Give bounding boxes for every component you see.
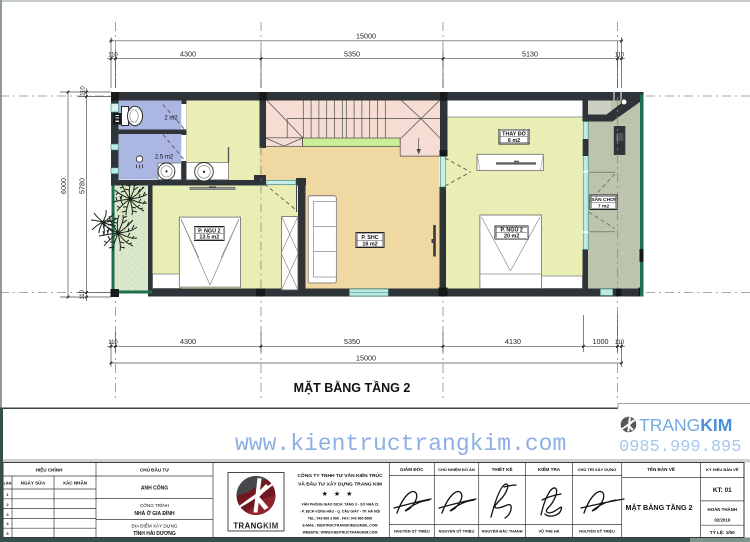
svg-text:★★★: ★★★ bbox=[322, 490, 359, 498]
svg-text:KT: 01: KT: 01 bbox=[713, 487, 732, 494]
svg-text:P. SHC: P. SHC bbox=[361, 235, 378, 241]
svg-text:XÁC NHẬN: XÁC NHẬN bbox=[63, 480, 88, 486]
svg-text:MẶT BẰNG TẦNG 2: MẶT BẰNG TẦNG 2 bbox=[294, 380, 411, 395]
svg-text:4300: 4300 bbox=[180, 337, 196, 346]
svg-text:ANH CÔNG: ANH CÔNG bbox=[141, 484, 168, 492]
svg-text:LẦN: LẦN bbox=[4, 482, 12, 486]
svg-text:6000: 6000 bbox=[59, 178, 68, 194]
svg-text:6 m2: 6 m2 bbox=[508, 138, 520, 144]
svg-text:5350: 5350 bbox=[344, 49, 360, 58]
svg-text:110: 110 bbox=[615, 52, 625, 58]
svg-text:TEL: 043 666 3 666 . FAX: 043: TEL: 043 666 3 666 . FAX: 043 666 8666 bbox=[308, 517, 372, 521]
svg-text:E-MAIL: KIENTRUCTRANGKIM@GMAIL: E-MAIL: KIENTRUCTRANGKIM@GMAIL.COM bbox=[303, 524, 378, 528]
svg-text:5130: 5130 bbox=[522, 49, 538, 58]
svg-text:7 m2: 7 m2 bbox=[598, 203, 609, 209]
svg-text:CÔNG TRÌNH: CÔNG TRÌNH bbox=[140, 502, 169, 508]
svg-text:KÝ HIỆU BẢN VẼ: KÝ HIỆU BẢN VẼ bbox=[706, 467, 739, 472]
svg-text:02/2019: 02/2019 bbox=[714, 518, 730, 523]
svg-text:1000: 1000 bbox=[593, 337, 609, 346]
svg-text:THAY ĐỒ: THAY ĐỒ bbox=[502, 131, 526, 138]
svg-text:15000: 15000 bbox=[356, 32, 376, 41]
svg-text:HIỆU CHỈNH: HIỆU CHỈNH bbox=[36, 466, 63, 473]
svg-text:NGUYỄN SỸ TRIỆU: NGUYỄN SỸ TRIỆU bbox=[394, 529, 430, 534]
svg-text:- P. DỊCH VỌNG HẬU - Q. CẦU GI: - P. DỊCH VỌNG HẬU - Q. CẦU GIẤY - TP. H… bbox=[300, 509, 381, 514]
svg-text:KIỂM TRA: KIỂM TRA bbox=[538, 466, 561, 472]
svg-text:110: 110 bbox=[615, 340, 625, 346]
svg-text:VĂN PHÒNG GIAO DỊCH: TẦNG 3 -: VĂN PHÒNG GIAO DỊCH: TẦNG 3 - SỐ NHÀ 21 bbox=[301, 502, 378, 507]
svg-text:NGUYỄN SỸ TRIỆU: NGUYỄN SỸ TRIỆU bbox=[439, 529, 475, 534]
svg-text:P. NGỦ 2: P. NGỦ 2 bbox=[501, 227, 523, 234]
svg-text:NGUYỄN SỸ TRIỆU: NGUYỄN SỸ TRIỆU bbox=[579, 529, 615, 534]
svg-text:0985.999.895: 0985.999.895 bbox=[619, 438, 741, 457]
svg-text:15000: 15000 bbox=[356, 354, 376, 363]
svg-text:5350: 5350 bbox=[344, 337, 360, 346]
svg-text:TRANGKIM: TRANGKIM bbox=[639, 415, 732, 435]
svg-text:NHÀ Ở GIA ĐÌNH: NHÀ Ở GIA ĐÌNH bbox=[134, 509, 175, 517]
svg-text:2.5 m2: 2.5 m2 bbox=[155, 155, 174, 161]
svg-text:110: 110 bbox=[81, 86, 87, 96]
svg-text:P. NGỦ 2: P. NGỦ 2 bbox=[198, 228, 220, 235]
svg-text:CHỦ ĐẦU TƯ: CHỦ ĐẦU TƯ bbox=[140, 467, 169, 473]
svg-text:WEBSITE: WWW.KIENTRUCTRANGKIM.: WEBSITE: WWW.KIENTRUCTRANGKIM.COM bbox=[303, 531, 378, 535]
svg-text:110: 110 bbox=[108, 52, 118, 58]
svg-text:SÂN CHƠI: SÂN CHƠI bbox=[591, 196, 616, 203]
svg-text:ĐỊA ĐIỂM XÂY DỰNG: ĐỊA ĐIỂM XÂY DỰNG bbox=[132, 523, 178, 529]
svg-text:NGUYỄN ĐẮC THANH: NGUYỄN ĐẮC THANH bbox=[482, 529, 523, 534]
svg-text:TỶ LỆ: 1/50: TỶ LỆ: 1/50 bbox=[710, 528, 735, 535]
svg-text:TRANGKIM: TRANGKIM bbox=[233, 522, 278, 531]
svg-text:VÀ ĐẦU TƯ XÂY DỰNG TRANG KIM: VÀ ĐẦU TƯ XÂY DỰNG TRANG KIM bbox=[298, 481, 382, 488]
svg-text:110: 110 bbox=[108, 340, 118, 346]
svg-text:HOÀN THÀNH: HOÀN THÀNH bbox=[708, 507, 738, 512]
svg-text:THIẾT KẾ: THIẾT KẾ bbox=[492, 466, 513, 472]
svg-text:NGÀY SỬA: NGÀY SỬA bbox=[21, 480, 46, 486]
svg-text:VŨ THẾ HÀ: VŨ THẾ HÀ bbox=[539, 529, 560, 534]
svg-text:MẶT BẰNG TẦNG 2: MẶT BẰNG TẦNG 2 bbox=[625, 502, 692, 512]
svg-text:4300: 4300 bbox=[180, 49, 196, 58]
svg-text:2 m2: 2 m2 bbox=[164, 116, 178, 122]
svg-text:CHỦ NHIỆM ĐỒ ÁN: CHỦ NHIỆM ĐỒ ÁN bbox=[438, 467, 475, 472]
svg-text:GIÁM ĐỐC: GIÁM ĐỐC bbox=[400, 466, 424, 472]
svg-text:20 m2: 20 m2 bbox=[504, 234, 519, 240]
svg-text:16 m2: 16 m2 bbox=[362, 241, 377, 247]
svg-text:4130: 4130 bbox=[505, 337, 521, 346]
svg-text:TỈNH HẢI DƯƠNG: TỈNH HẢI DƯƠNG bbox=[133, 530, 176, 537]
svg-text:CHỦ TRÌ XÂY DỰNG: CHỦ TRÌ XÂY DỰNG bbox=[578, 467, 617, 472]
svg-text:13.5 m2: 13.5 m2 bbox=[199, 235, 219, 241]
svg-text:www.kientructrangkim.com: www.kientructrangkim.com bbox=[235, 431, 566, 457]
svg-text:5780: 5780 bbox=[78, 178, 87, 194]
svg-text:TÊN BẢN VẼ: TÊN BẢN VẼ bbox=[647, 465, 675, 472]
svg-text:110: 110 bbox=[80, 289, 86, 299]
